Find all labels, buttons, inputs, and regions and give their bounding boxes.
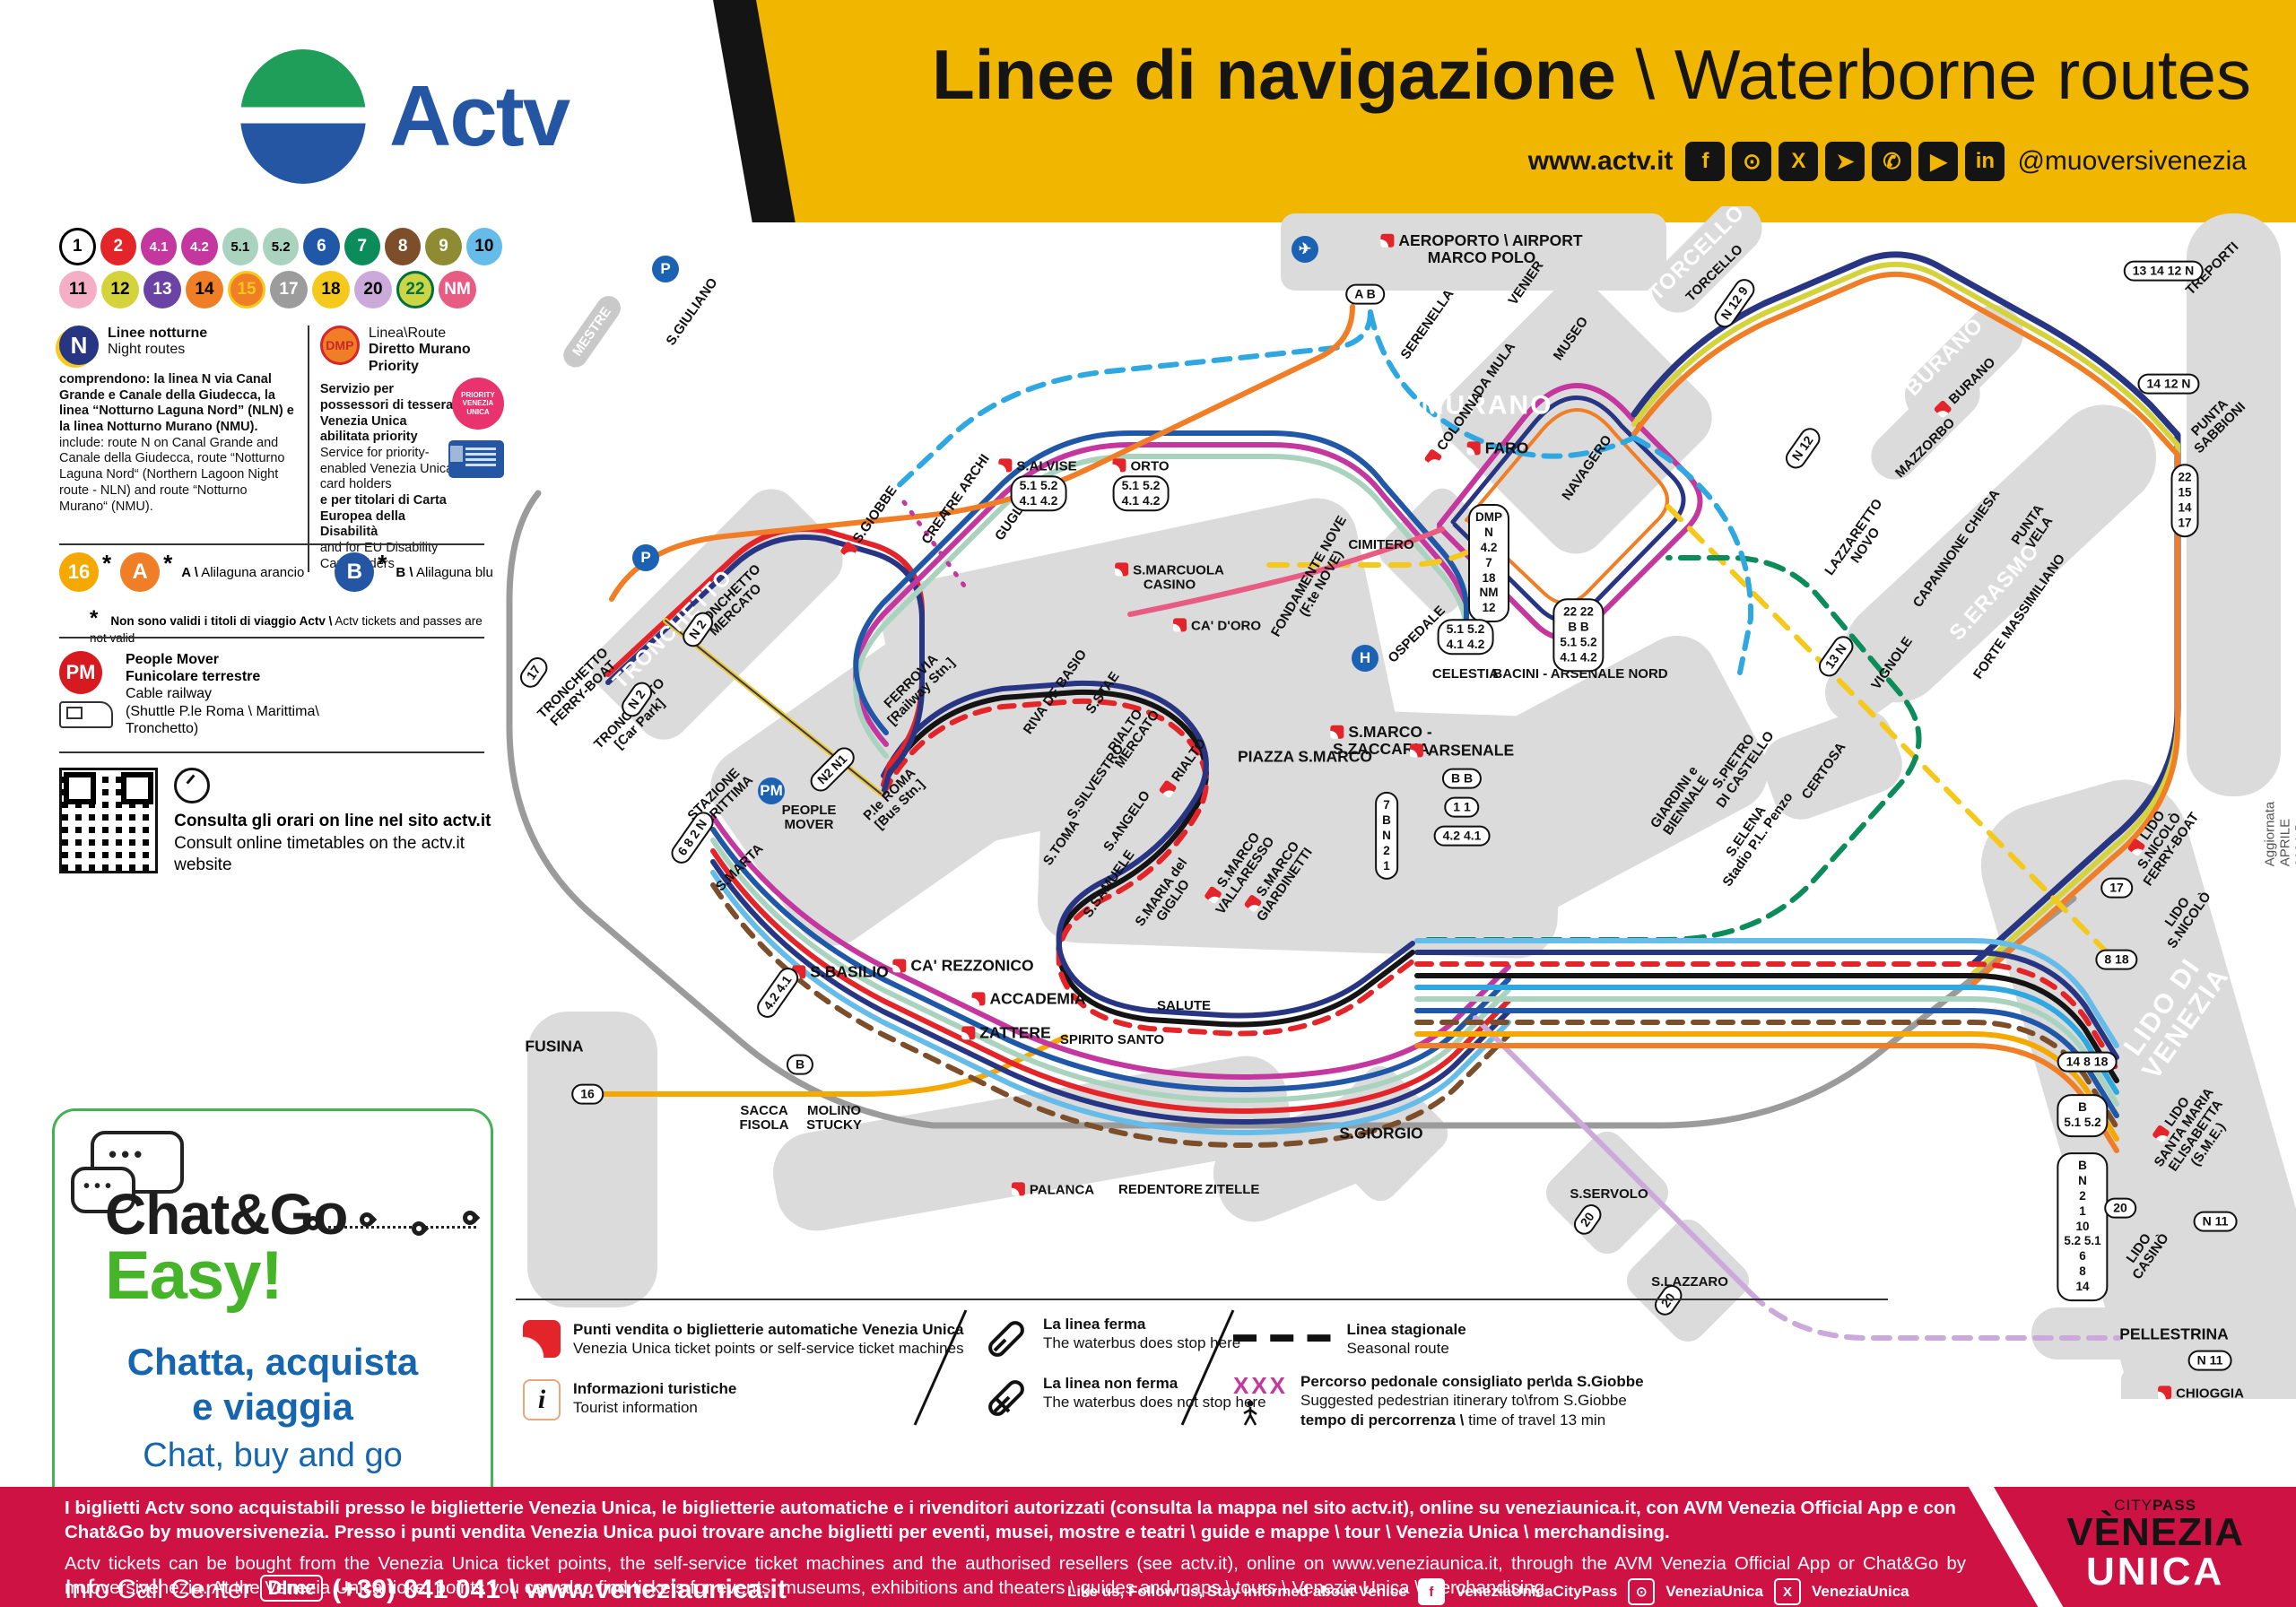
title-italian: Linee di navigazione: [932, 35, 1616, 114]
alilaguna-orange-badge: A: [120, 552, 160, 592]
route-badge-6: 6: [303, 228, 339, 265]
footer: I biglietti Actv sono acquistabili press…: [0, 1487, 2296, 1607]
map-label: S.LAZZARO: [1651, 1275, 1728, 1290]
map-label: MURANO: [1422, 391, 1553, 420]
facebook-icon[interactable]: f: [1685, 142, 1725, 181]
facebook-icon[interactable]: f: [1418, 1578, 1445, 1605]
route-number-pill: 5.1 5.2 4.1 4.2: [1438, 619, 1494, 655]
call-center-bar: Info Call Center DIme (+39) 041 041 \ ww…: [65, 1575, 787, 1605]
youtube-icon[interactable]: ▶: [1918, 142, 1958, 181]
map-label: S.MARCUOLA CASINO: [1115, 562, 1224, 592]
x-icon[interactable]: X: [1774, 1578, 1801, 1605]
map-label: ARSENALE: [1410, 742, 1514, 759]
divider: [59, 637, 484, 638]
actv-logo-text: Actv: [389, 67, 569, 166]
actv-logo-icon: [240, 49, 366, 184]
ticket-point-icon: [1410, 743, 1423, 757]
ticket-point-icon: [1467, 441, 1481, 455]
pin-trail-icon: [306, 1226, 476, 1229]
map-label: S.ALVISE: [998, 458, 1076, 473]
route-number-pill: 5.1 5.2 4.1 4.2: [1011, 475, 1067, 511]
qr-code: [59, 768, 158, 873]
night-routes-legend: N Linee notturneNight routes comprendono…: [59, 326, 309, 572]
route-number-pill: 17: [2100, 878, 2133, 899]
route-badge-22: 22: [396, 271, 434, 308]
route-number-pill: B 5.1 5.2: [2057, 1094, 2108, 1137]
route-number-pill: 5.1 5.2 4.1 4.2: [1113, 475, 1170, 511]
route-badge-7: 7: [344, 228, 380, 265]
social-handle: @muoversivenezia: [2017, 146, 2247, 177]
people-mover-legend: PM People Mover Funicolare terrestre Cab…: [59, 651, 319, 737]
ticket-point-icon: [523, 1320, 561, 1358]
route-badges-row1: 124.14.25.15.2678910: [59, 228, 502, 265]
title-english: Waterborne routes: [1674, 35, 2251, 114]
timetable-qr-legend: Consulta gli orari on line nel sito actv…: [59, 768, 502, 877]
map-label: ACCADEMIA: [972, 990, 1086, 1007]
map-label: CHIOGGIA: [2158, 1385, 2244, 1401]
cable-railway-icon: [59, 701, 113, 728]
clock-icon: [174, 768, 210, 803]
veneziaunica-link[interactable]: www.veneziaunica.it: [526, 1575, 787, 1605]
route-number-pill: 14 12 N: [2137, 374, 2199, 395]
map-label: CA' REZZONICO: [892, 957, 1033, 974]
map-label: S.BASILIO: [792, 963, 889, 980]
alilaguna-legend: 16* A* A \ Alilaguna arancio B* B \ Alil…: [59, 552, 493, 592]
route-number-pill: B N 2 1 10 5.2 5.1 6 8 14: [2057, 1152, 2108, 1301]
chatgo-easy: Easy!: [105, 1237, 283, 1315]
route-badge-14: 14: [186, 271, 223, 308]
map-label: S.SERVOLO: [1570, 1187, 1648, 1202]
footer-diagonal-stripe: [1969, 1487, 2066, 1607]
map-label: P: [632, 544, 659, 571]
route-badge-8: 8: [385, 228, 421, 265]
route-number-pill: 22 22 B B 5.1 5.2 4.1 4.2: [1552, 598, 1604, 672]
route-badge-5.1: 5.1: [222, 228, 258, 265]
map-label: CA' D'ORO: [1173, 618, 1261, 633]
divider: [59, 543, 484, 545]
website-link[interactable]: www.actv.it: [1528, 146, 1674, 177]
map-label: ZATTERE: [961, 1024, 1050, 1041]
map-legend: Punti vendita o biglietterie automatiche…: [516, 1299, 1888, 1430]
route-number-pill: 8 18: [2095, 950, 2137, 970]
map-label: CELESTIA: [1432, 667, 1499, 682]
alilaguna-blue-badge: B: [335, 552, 374, 592]
map-label: Aggiornata APRILE 2024 ®: [2263, 802, 2296, 867]
route-number-pill: B: [787, 1055, 813, 1075]
map-label: H: [1352, 645, 1378, 672]
route-badge-4.1: 4.1: [141, 228, 177, 265]
map-label: S.GIORGIO: [1339, 1125, 1422, 1142]
route-number-pill: 7 B N 2 1: [1375, 792, 1398, 880]
pm-badge: PM: [59, 651, 102, 694]
map-label: MOLINO STUCKY: [806, 1104, 862, 1133]
legend-columns: N Linee notturneNight routes comprendono…: [59, 326, 499, 572]
route-number-pill: DMP N 4.2 7 18 NM 12: [1468, 504, 1509, 622]
route-number-pill: 1 1: [1444, 797, 1479, 818]
ticket-point-icon: [1115, 562, 1128, 576]
route-number-pill: 13 14 12 N: [2124, 261, 2204, 282]
route-number-pill: N 11: [2188, 1351, 2232, 1371]
dmp-badge: DMP: [320, 326, 360, 365]
ticket-point-icon: [998, 458, 1012, 472]
legend-sidebar: 124.14.25.15.2678910 111213141517182022N…: [0, 222, 502, 1487]
route-number-pill: A B: [1345, 284, 1385, 305]
map-label: PEOPLE MOVER: [782, 803, 837, 832]
route-number-pill: 16: [571, 1084, 604, 1105]
route-badge-13: 13: [143, 271, 181, 308]
route-number-pill: 4.2 4.1: [1434, 826, 1491, 847]
route-badge-17: 17: [270, 271, 308, 308]
map-label: ✈: [1291, 236, 1318, 263]
map-label: PM: [758, 777, 785, 804]
map-label: P: [652, 256, 679, 282]
venezia-unica-logo: CITYPASS VÈNEZIA UNICA: [2066, 1498, 2244, 1592]
map-label: PALANCA: [1012, 1182, 1094, 1197]
eu-disability-card: [448, 440, 504, 478]
walking-person-icon: [1240, 1400, 1260, 1427]
map-label: FUSINA: [525, 1038, 583, 1055]
map-label: SACCA FISOLA: [740, 1104, 789, 1133]
ticket-point-icon: [1380, 234, 1394, 248]
x-icon[interactable]: X: [1779, 142, 1818, 181]
header: Actv Linee di navigazione \ Waterborne r…: [0, 0, 2296, 222]
instagram-icon[interactable]: ⊙: [1628, 1578, 1655, 1605]
tourist-info-icon: i: [523, 1379, 561, 1420]
map-label: CIMITERO: [1348, 538, 1413, 552]
header-subline: www.actv.it f⊙X➤✆▶in @muoversivenezia: [1528, 142, 2247, 181]
ticket-point-icon: [972, 992, 986, 1005]
route-badge-15: 15: [228, 271, 265, 308]
poster: Actv Linee di navigazione \ Waterborne r…: [0, 0, 2296, 1607]
ticket-point-icon: [1012, 1182, 1025, 1195]
route-badge-20: 20: [354, 271, 392, 308]
route-number-pill: N 11: [2194, 1212, 2238, 1232]
route-number-pill: 14 8 18: [2057, 1052, 2118, 1073]
route-map: MESTRES.GIULIANOPP✈AEROPORTO \ AIRPORT M…: [502, 206, 2296, 1399]
dime-logo: DIme: [260, 1575, 323, 1602]
priority-logo: PRIORITYVENEZIA UNICA: [452, 378, 504, 430]
instagram-icon[interactable]: ⊙: [1732, 142, 1771, 181]
seasonal-line-icon: ▬ ▬ ▬: [1233, 1320, 1334, 1348]
route-badge-2: 2: [100, 228, 136, 265]
ticket-point-icon: [1173, 618, 1187, 631]
ticket-point-icon: [1112, 458, 1126, 472]
page-title: Linee di navigazione \ Waterborne routes: [932, 34, 2251, 116]
ticket-point-icon: [892, 959, 906, 972]
map-label: REDENTORE: [1118, 1183, 1203, 1197]
alilaguna-note: *Non sono validi i titoli di viaggio Act…: [90, 606, 502, 645]
map-label: SPIRITO SANTO: [1060, 1033, 1164, 1047]
route-number-pill: 20: [2104, 1198, 2136, 1219]
route-number-pill: B B: [1442, 769, 1482, 789]
map-label: FARO: [1467, 439, 1529, 456]
pedestrian-route-icon: XXX: [1233, 1372, 1288, 1400]
map-label: ZITELLE: [1205, 1183, 1260, 1197]
whatsapp-icon[interactable]: ✆: [1872, 142, 1911, 181]
route-badge-9: 9: [425, 228, 461, 265]
footer-social: Like us, Follow us, Stay informed about …: [1067, 1578, 1909, 1605]
social-icons: f⊙X➤✆▶in: [1685, 142, 2005, 181]
route-badge-5.2: 5.2: [263, 228, 299, 265]
map-label: AEROPORTO \ AIRPORT MARCO POLO: [1380, 232, 1582, 267]
route-badge-4.2: 4.2: [181, 228, 217, 265]
no-stop-icon: [982, 1374, 1031, 1422]
route-badge-11: 11: [59, 271, 97, 308]
route-badge-nm: NM: [439, 271, 476, 308]
ticket-point-icon: [2158, 1385, 2171, 1399]
actv-logo: Actv: [240, 49, 569, 184]
map-label: ORTO: [1112, 458, 1169, 473]
route-badges-row2: 111213141517182022NM: [59, 271, 502, 308]
telegram-icon[interactable]: ➤: [1825, 142, 1865, 181]
map-label: GIUDECCA: [952, 1205, 1110, 1234]
route-badge-10: 10: [466, 228, 502, 265]
route-badge-12: 12: [101, 271, 139, 308]
map-label: PELLESTRINA: [2119, 1325, 2229, 1342]
ticket-point-icon: [1330, 725, 1344, 739]
night-route-badge: N: [59, 326, 99, 365]
stop-here-icon: [982, 1315, 1031, 1363]
route-badge-18: 18: [312, 271, 350, 308]
route-16-badge: 16: [59, 552, 99, 592]
ticket-point-icon: [961, 1026, 975, 1039]
linkedin-icon[interactable]: in: [1965, 142, 2005, 181]
divider: [59, 751, 484, 753]
chatgo-slogan: Chatta, acquista e viaggia Chat, buy and…: [55, 1340, 491, 1476]
route-badge-1: 1: [59, 228, 96, 265]
dmp-legend: DMP Linea\RouteDiretto Murano Priority S…: [309, 326, 499, 572]
route-number-pill: 22 15 14 17: [2170, 464, 2198, 537]
map-label: SALUTE: [1157, 999, 1211, 1013]
